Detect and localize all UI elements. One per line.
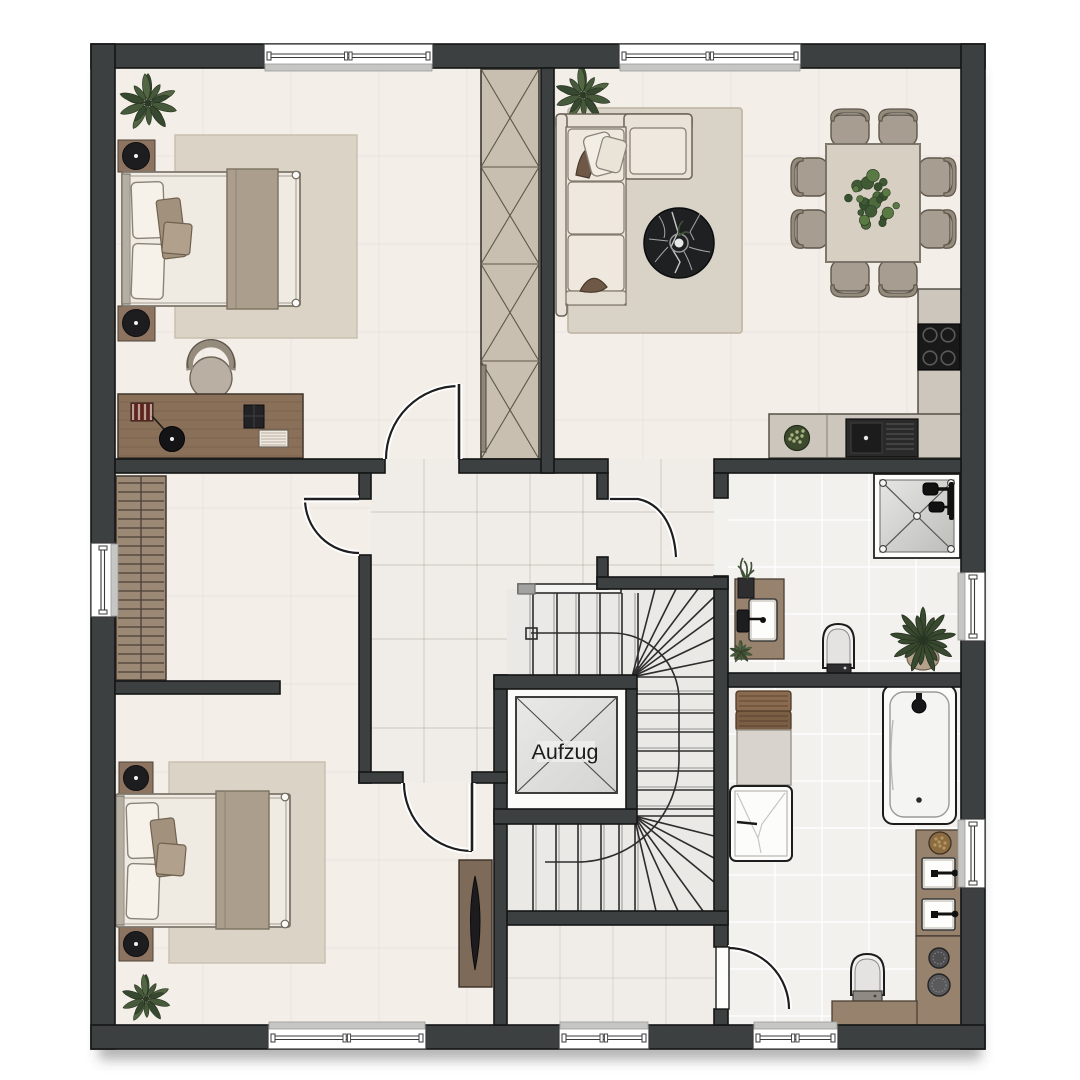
svg-text:Aufzug: Aufzug: [532, 740, 599, 764]
